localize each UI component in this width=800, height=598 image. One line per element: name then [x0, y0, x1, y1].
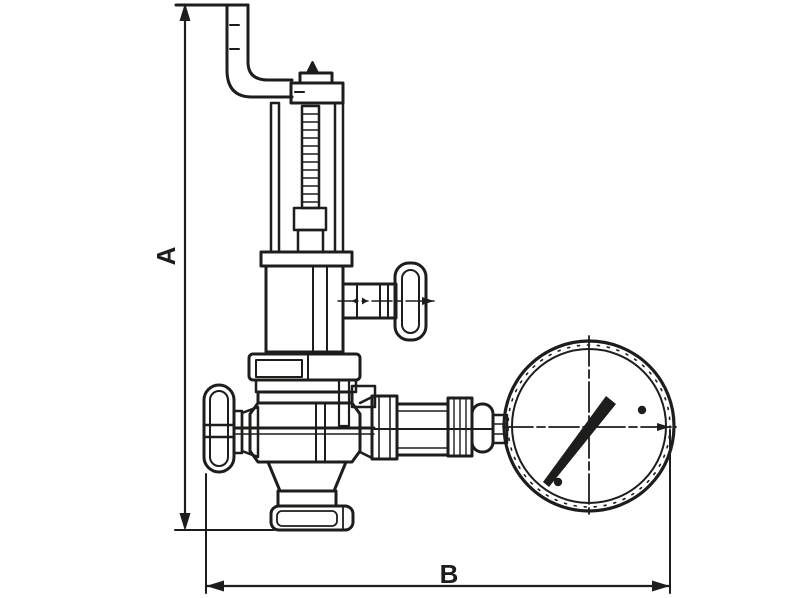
gauge-needle	[543, 396, 616, 487]
thread-hatching	[302, 114, 319, 202]
spring-housing	[261, 252, 352, 352]
handwheel-knob	[204, 385, 234, 472]
flange-stack	[249, 354, 375, 426]
dimension-b-arrow-right	[652, 581, 670, 592]
technical-drawing-page: A B	[0, 0, 800, 598]
bottom-outlet-flange	[268, 462, 353, 530]
dial-set-point-dot	[638, 406, 646, 414]
bonnet-cap	[291, 62, 343, 103]
adjusting-screw	[294, 106, 326, 252]
dimension-a-arrow-down	[180, 513, 191, 531]
dimension-b-label: B	[440, 559, 459, 589]
vent-pipe	[176, 5, 292, 97]
dimension-a-label: A	[151, 246, 181, 265]
lock-nut	[294, 208, 326, 230]
needle-counterweight-dot	[554, 478, 562, 486]
valve-body	[236, 392, 374, 462]
dimension-a: A	[151, 3, 274, 531]
valve-technical-drawing: A B	[0, 0, 800, 598]
pressure-gauge	[503, 336, 676, 514]
pipe-thread-marks	[230, 25, 239, 49]
dimension-b-arrow-left	[206, 581, 224, 592]
pilot-handle	[338, 263, 434, 340]
outlet-connector	[360, 396, 507, 459]
